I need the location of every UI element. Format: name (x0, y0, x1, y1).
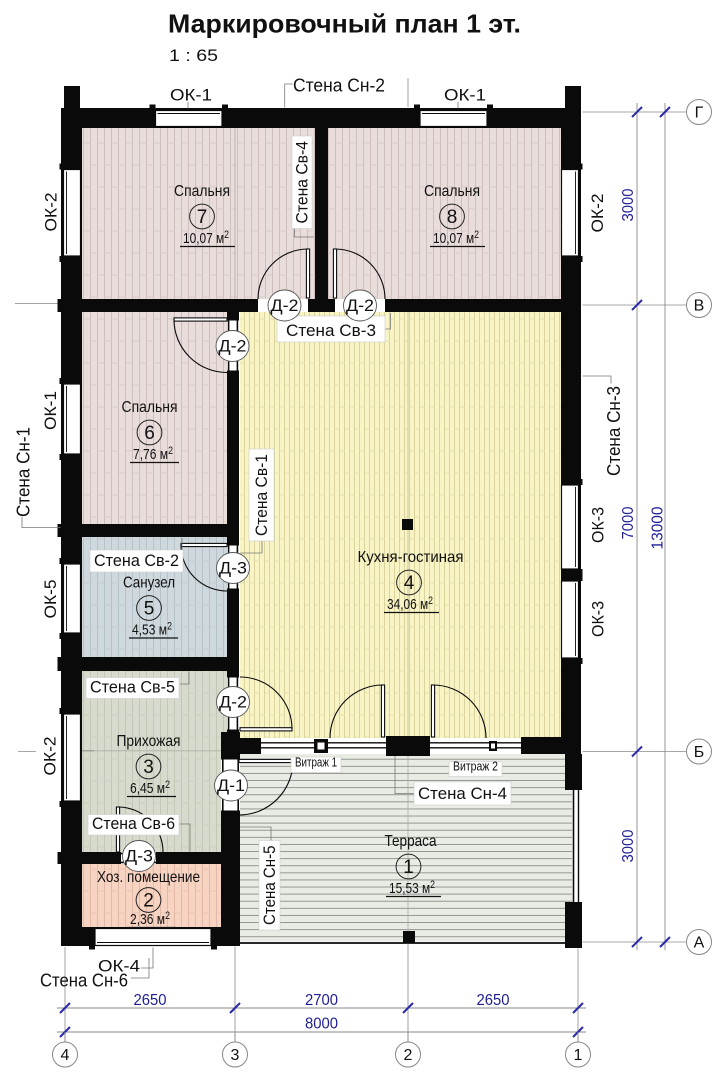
svg-text:1: 1 (574, 1047, 583, 1064)
svg-text:5: 5 (144, 599, 155, 620)
svg-text:Д-2: Д-2 (219, 337, 247, 355)
svg-text:ОК-2: ОК-2 (42, 193, 61, 232)
svg-text:Стена Св-6: Стена Св-6 (92, 815, 175, 833)
svg-text:1: 1 (403, 857, 414, 878)
svg-text:4,53 м2: 4,53 м2 (132, 621, 172, 639)
svg-text:Стена Св-2: Стена Св-2 (94, 552, 179, 570)
svg-text:ОК-5: ОК-5 (41, 580, 60, 619)
svg-text:Кухня-гостиная: Кухня-гостиная (358, 549, 464, 566)
svg-text:4: 4 (404, 573, 415, 594)
svg-text:7: 7 (197, 207, 208, 228)
svg-text:ОК-1: ОК-1 (170, 86, 212, 105)
svg-text:13000: 13000 (650, 506, 667, 549)
svg-text:Стена Сн-4: Стена Сн-4 (418, 784, 507, 803)
svg-text:3000: 3000 (620, 188, 637, 221)
svg-text:Г: Г (695, 105, 704, 122)
svg-text:Стена Сн-2: Стена Сн-2 (293, 75, 385, 96)
svg-text:3: 3 (231, 1047, 240, 1064)
svg-text:Стена Сн-3: Стена Сн-3 (603, 386, 624, 476)
svg-text:ОК-2: ОК-2 (41, 737, 60, 776)
svg-text:Б: Б (694, 744, 705, 761)
svg-text:10,07 м2: 10,07 м2 (433, 229, 479, 247)
svg-text:3000: 3000 (620, 829, 637, 862)
svg-text:Д-2: Д-2 (219, 693, 247, 711)
svg-text:ОК-2: ОК-2 (588, 194, 607, 233)
svg-text:15,53 м2: 15,53 м2 (389, 879, 435, 897)
svg-text:ОК-1: ОК-1 (444, 86, 486, 105)
svg-text:2650: 2650 (477, 992, 510, 1009)
svg-text:6,45 м2: 6,45 м2 (130, 779, 170, 797)
svg-text:Стена Сн-5: Стена Сн-5 (261, 846, 279, 926)
svg-text:ОК-3: ОК-3 (589, 601, 608, 637)
svg-text:2700: 2700 (305, 992, 338, 1009)
svg-text:Стена Св-5: Стена Св-5 (90, 679, 175, 697)
svg-text:34,06 м2: 34,06 м2 (387, 595, 433, 613)
svg-text:6: 6 (144, 423, 155, 444)
svg-text:3: 3 (143, 757, 154, 778)
svg-text:Хоз. помещение: Хоз. помещение (97, 869, 200, 886)
svg-text:Д-3: Д-3 (125, 847, 153, 865)
svg-text:Витраж 1: Витраж 1 (295, 755, 337, 770)
svg-text:Прихожая: Прихожая (117, 733, 181, 750)
svg-text:2: 2 (404, 1047, 413, 1064)
svg-text:Стена Св-3: Стена Св-3 (286, 321, 376, 340)
svg-text:ОК-3: ОК-3 (589, 507, 608, 543)
svg-text:8000: 8000 (305, 1016, 338, 1033)
svg-text:В: В (694, 298, 705, 315)
svg-text:2: 2 (143, 891, 154, 912)
svg-text:Спальня: Спальня (424, 183, 480, 200)
svg-text:Д-2: Д-2 (271, 297, 299, 315)
svg-text:1 : 65: 1 : 65 (169, 46, 218, 65)
svg-text:Стена Св-1: Стена Св-1 (253, 454, 271, 536)
svg-text:10,07 м2: 10,07 м2 (183, 229, 229, 247)
svg-text:Санузел: Санузел (123, 575, 175, 592)
svg-text:А: А (694, 935, 705, 952)
svg-text:Стена Св-4: Стена Св-4 (294, 141, 312, 224)
svg-text:Д-3: Д-3 (219, 559, 247, 577)
svg-text:Спальня: Спальня (122, 399, 178, 416)
svg-text:Спальня: Спальня (174, 183, 230, 200)
svg-text:7,76 м2: 7,76 м2 (133, 445, 173, 463)
svg-text:2650: 2650 (134, 992, 167, 1009)
svg-text:4: 4 (61, 1047, 70, 1064)
svg-text:Стена Сн-1: Стена Сн-1 (13, 427, 34, 517)
svg-text:Витраж 2: Витраж 2 (453, 759, 498, 774)
svg-text:8: 8 (447, 207, 458, 228)
svg-text:ОК-1: ОК-1 (41, 391, 60, 430)
svg-text:2,36 м2: 2,36 м2 (130, 910, 170, 928)
svg-text:Стена Сн-6: Стена Сн-6 (40, 970, 128, 991)
svg-text:Маркировочный план 1 эт.: Маркировочный план 1 эт. (168, 9, 521, 39)
svg-text:Терраса: Терраса (385, 833, 437, 850)
svg-text:Д-1: Д-1 (217, 777, 245, 795)
svg-text:7000: 7000 (620, 506, 637, 539)
svg-text:Д-2: Д-2 (346, 297, 374, 315)
